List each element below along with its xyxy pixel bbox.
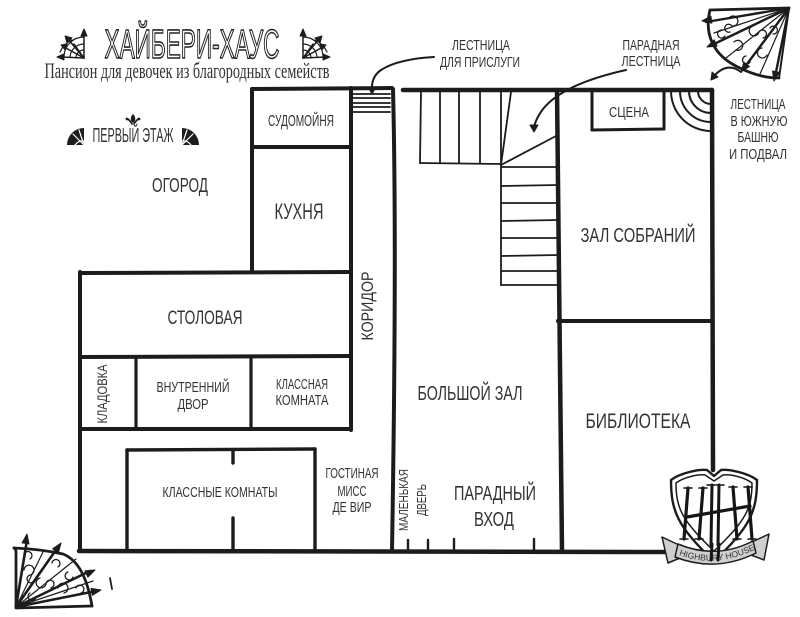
svg-text:КОРИДОР: КОРИДОР <box>358 272 377 341</box>
svg-text:КЛАДОВКА: КЛАДОВКА <box>94 364 110 424</box>
svg-text:БАШНЮ: БАШНЮ <box>738 129 779 146</box>
svg-text:ОГОРОД: ОГОРОД <box>152 175 208 197</box>
svg-text:ВНУТРЕННИЙ: ВНУТРЕННИЙ <box>157 378 230 396</box>
svg-text:ЛЕСТНИЦА: ЛЕСТНИЦА <box>452 37 510 54</box>
svg-text:БОЛЬШОЙ ЗАЛ: БОЛЬШОЙ ЗАЛ <box>418 381 523 405</box>
svg-text:КЛАССНАЯ: КЛАССНАЯ <box>276 376 328 393</box>
svg-text:СЦЕНА: СЦЕНА <box>609 104 649 121</box>
svg-text:Пансион для девочек из благоро: Пансион для девочек из благородных семей… <box>45 58 330 83</box>
svg-text:ДЕ ВИР: ДЕ ВИР <box>333 500 372 516</box>
svg-text:В ЮЖНУЮ: В ЮЖНУЮ <box>731 113 788 130</box>
svg-text:ВХОД: ВХОД <box>474 509 514 531</box>
svg-text:БИБЛИОТЕКА: БИБЛИОТЕКА <box>586 410 691 433</box>
svg-text:ГОСТИНАЯ: ГОСТИНАЯ <box>326 466 379 482</box>
svg-text:КЛАССНЫЕ КОМНАТЫ: КЛАССНЫЕ КОМНАТЫ <box>163 484 278 501</box>
svg-text:ЗАЛ СОБРАНИЙ: ЗАЛ СОБРАНИЙ <box>581 223 696 247</box>
svg-text:МИСС: МИСС <box>338 484 367 500</box>
svg-text:СТОЛОВАЯ: СТОЛОВАЯ <box>168 308 243 329</box>
svg-text:КУХНЯ: КУХНЯ <box>275 199 324 224</box>
svg-text:ДВОР: ДВОР <box>178 396 209 413</box>
svg-text:ЛЕСТНИЦА: ЛЕСТНИЦА <box>731 96 786 113</box>
svg-text:МАЛЕНЬКАЯ: МАЛЕНЬКАЯ <box>397 469 411 531</box>
svg-text:КОМНАТА: КОМНАТА <box>276 392 329 409</box>
svg-text:ПАРАДНЫЙ: ПАРАДНЫЙ <box>454 481 536 505</box>
svg-text:ДВЕРЬ: ДВЕРЬ <box>415 484 429 516</box>
svg-text:И ПОДВАЛ: И ПОДВАЛ <box>729 146 787 163</box>
svg-text:СУДОМОЙНЯ: СУДОМОЙНЯ <box>268 111 334 130</box>
svg-text:ПАРАДНАЯ: ПАРАДНАЯ <box>623 37 680 54</box>
svg-text:ПЕРВЫЙ ЭТАЖ: ПЕРВЫЙ ЭТАЖ <box>93 123 174 147</box>
svg-text:ЛЕСТНИЦА: ЛЕСТНИЦА <box>622 53 681 70</box>
svg-text:ДЛЯ ПРИСЛУГИ: ДЛЯ ПРИСЛУГИ <box>440 54 520 71</box>
